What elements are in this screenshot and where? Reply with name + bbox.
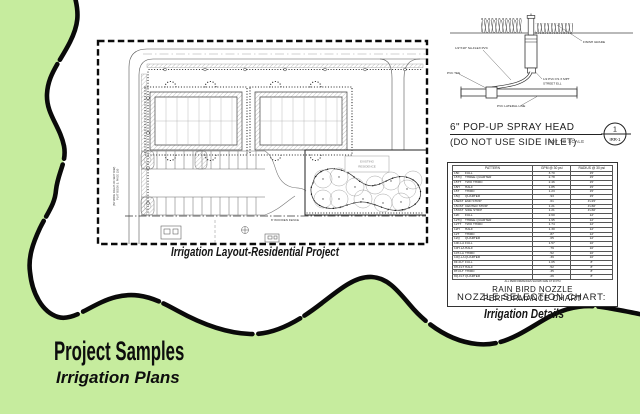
nozzle-selection-chart-label: NOZZLE SELECTION CHART: bbox=[457, 292, 606, 303]
spray-head-figure: 1/2"X18" SA-FLEX PVC PVC TEE FINISH GRAD… bbox=[445, 8, 640, 113]
existing-residence-label-2: RESIDENCE bbox=[358, 165, 376, 169]
pvc-tee-fitting bbox=[486, 87, 497, 98]
lateral-line-label: PVC LATERAL LINE bbox=[497, 104, 525, 108]
existing-residence: EXISTING RESIDENCE bbox=[345, 156, 389, 172]
planting-islands bbox=[141, 151, 207, 215]
detail-title-underline bbox=[450, 134, 602, 135]
sprinkler-heads bbox=[147, 68, 407, 204]
building-1 bbox=[150, 92, 242, 150]
existing-residence-label-1: EXISTING bbox=[360, 160, 375, 164]
detail-sheet-number: IRR-1 bbox=[610, 137, 622, 142]
detail-title: 6" POP-UP SPRAY HEAD bbox=[450, 122, 574, 133]
finish-grade-label: FINISH GRADE bbox=[583, 40, 605, 44]
row-label-line2: PLAT BOOK 5, PAGE 150 bbox=[115, 168, 119, 200]
chart-note: ALL PERFORMANCES SHOWN ARE AT 30 PSI bbox=[452, 280, 613, 283]
flex-pipe-fill bbox=[492, 72, 531, 88]
site-plan-caption: Irrigation Layout-Residential Project bbox=[171, 245, 339, 259]
hedge-strip-left bbox=[142, 74, 147, 215]
detail-number: 1 bbox=[613, 127, 617, 134]
hedge-strip-top bbox=[147, 64, 423, 68]
walkway-curves bbox=[265, 151, 306, 215]
row-label-line1: (50' WIDE RIGHT-OF-WAY R/W) bbox=[112, 167, 116, 206]
grass-patch-right bbox=[535, 23, 573, 34]
slide: { "page": { "background_color": "#c6ec9e… bbox=[0, 0, 640, 414]
utility-marker bbox=[242, 227, 249, 234]
right-of-way-label: (50' WIDE RIGHT-OF-WAY R/W) PLAT BOOK 5,… bbox=[112, 167, 119, 206]
irrigation-details-caption: Irrigation Details bbox=[484, 306, 564, 321]
nozzle-table: PATTERN GPM @ 30 psi RADIUS @ 30 psi 15F… bbox=[452, 165, 613, 280]
page-subtitle: Irrigation Plans bbox=[56, 368, 180, 388]
pvc-tee-label: PVC TEE bbox=[447, 71, 460, 75]
not-to-scale-label: NOT TO SCALE bbox=[548, 139, 585, 144]
nozzle-performance-chart: PATTERN GPM @ 30 psi RADIUS @ 30 psi 15F… bbox=[447, 162, 618, 307]
lateral-pipe bbox=[461, 89, 577, 96]
spray-head-body bbox=[525, 14, 537, 74]
nozzle-row: 8Q-FLTQUARTER .26 8' bbox=[453, 275, 613, 280]
site-plan-drawing: EXISTING RESIDENCE 8' WOODEN FENCE (50' … bbox=[95, 38, 435, 248]
flex-pipe-label: 1/2"X18" SA-FLEX PVC bbox=[455, 46, 489, 50]
building-2 bbox=[255, 92, 347, 150]
grass-patch-left bbox=[481, 18, 522, 33]
street-ell-label-2: STREET ELL bbox=[543, 81, 562, 85]
detail-reference-bubble: 1 IRR-1 bbox=[601, 121, 631, 147]
wooden-fence-label: 8' WOODEN FENCE bbox=[271, 218, 299, 222]
kidney-lawn bbox=[311, 169, 421, 211]
utility-boxes bbox=[161, 226, 279, 242]
page-title: Project Samples bbox=[54, 336, 184, 367]
